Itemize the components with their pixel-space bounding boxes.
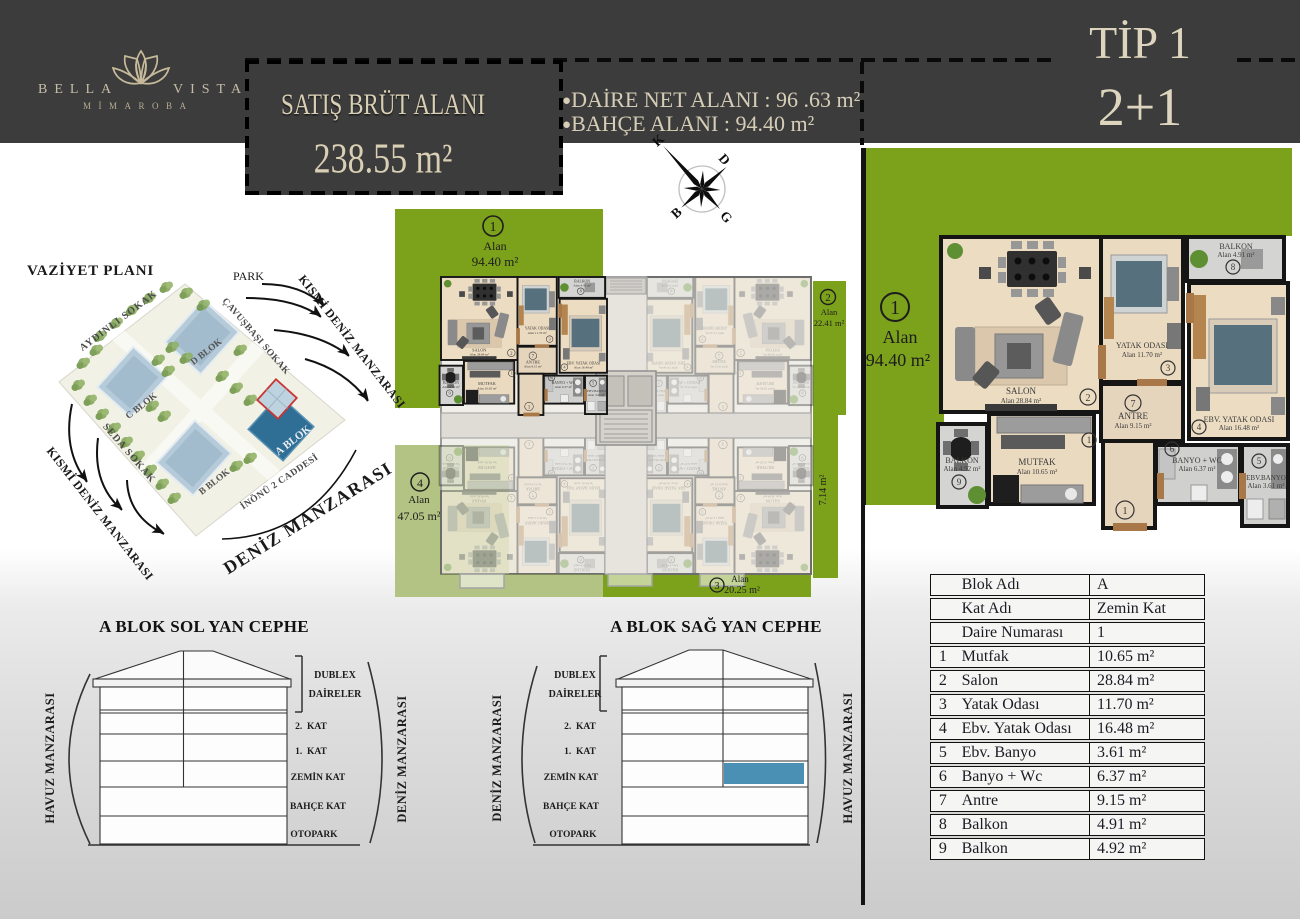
svg-text:Alan: Alan bbox=[821, 307, 838, 317]
svg-text:HAVUZ MANZARASI: HAVUZ MANZARASI bbox=[43, 692, 57, 823]
svg-text:94.40 m²: 94.40 m² bbox=[472, 254, 519, 269]
svg-text:ZEMİN KAT: ZEMİN KAT bbox=[291, 771, 346, 783]
svg-text:A BLOK SOL YAN CEPHE: A BLOK SOL YAN CEPHE bbox=[99, 617, 309, 636]
svg-text:K: K bbox=[649, 131, 667, 150]
svg-text:Alan: Alan bbox=[883, 327, 918, 347]
svg-text:1. KAT: 1. KAT bbox=[564, 747, 596, 757]
svg-text:20.25 m²: 20.25 m² bbox=[724, 585, 760, 596]
svg-text:3: 3 bbox=[715, 581, 720, 592]
svg-text:1: 1 bbox=[490, 220, 497, 235]
svg-text:KISMİ DENİZ MANZARASI: KISMİ DENİZ MANZARASI bbox=[296, 272, 409, 411]
svg-text:94.40 m²: 94.40 m² bbox=[866, 350, 930, 370]
svg-text:D: D bbox=[716, 151, 734, 168]
svg-text:BAHÇE KAT: BAHÇE KAT bbox=[543, 802, 600, 812]
svg-text:Alan: Alan bbox=[731, 574, 749, 584]
svg-text:22.41 m²: 22.41 m² bbox=[814, 318, 845, 328]
svg-text:DUBLEX: DUBLEX bbox=[314, 670, 356, 681]
svg-text:DENİZ MANZARASI: DENİZ MANZARASI bbox=[395, 695, 409, 822]
svg-text:7.14 m²: 7.14 m² bbox=[818, 475, 829, 506]
svg-text:PARK: PARK bbox=[233, 269, 264, 283]
svg-text:1. KAT: 1. KAT bbox=[295, 747, 327, 757]
svg-text:OTOPARK: OTOPARK bbox=[290, 830, 338, 840]
svg-text:DAİRELER: DAİRELER bbox=[309, 688, 363, 700]
svg-text:BAHÇE KAT: BAHÇE KAT bbox=[290, 802, 347, 812]
svg-text:ZEMİN KAT: ZEMİN KAT bbox=[544, 771, 599, 783]
svg-text:2. KAT: 2. KAT bbox=[564, 722, 596, 732]
svg-text:1: 1 bbox=[890, 297, 900, 319]
svg-text:2: 2 bbox=[825, 292, 831, 304]
svg-text:A BLOK SAĞ YAN CEPHE: A BLOK SAĞ YAN CEPHE bbox=[610, 617, 822, 636]
svg-text:DENİZ MANZARASI: DENİZ MANZARASI bbox=[490, 694, 504, 821]
svg-text:DUBLEX: DUBLEX bbox=[554, 670, 596, 681]
svg-text:HAVUZ MANZARASI: HAVUZ MANZARASI bbox=[841, 692, 855, 823]
svg-text:OTOPARK: OTOPARK bbox=[549, 830, 597, 840]
svg-text:2. KAT: 2. KAT bbox=[295, 722, 327, 732]
svg-text:VAZİYET PLANI: VAZİYET PLANI bbox=[27, 262, 154, 279]
svg-text:Alan: Alan bbox=[483, 239, 506, 253]
svg-text:DAİRELER: DAİRELER bbox=[549, 688, 603, 700]
